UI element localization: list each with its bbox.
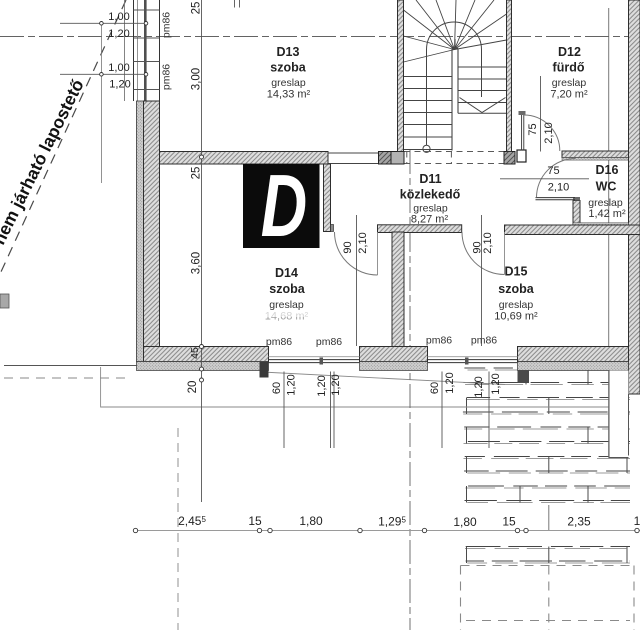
svg-text:25: 25 xyxy=(191,2,203,15)
svg-text:10,69 m²: 10,69 m² xyxy=(494,311,538,323)
svg-text:1,42 m²: 1,42 m² xyxy=(588,208,626,220)
svg-text:1,20: 1,20 xyxy=(109,79,130,91)
svg-text:D14: D14 xyxy=(275,266,298,280)
svg-text:2,35: 2,35 xyxy=(567,515,591,529)
svg-text:1,80: 1,80 xyxy=(299,514,323,528)
svg-text:45: 45 xyxy=(189,347,201,359)
svg-text:D: D xyxy=(261,157,307,255)
svg-text:1,00: 1,00 xyxy=(108,11,129,23)
svg-text:15: 15 xyxy=(502,515,516,529)
svg-text:D13: D13 xyxy=(277,45,300,59)
svg-text:1,20: 1,20 xyxy=(490,373,502,394)
svg-text:14,33 m²: 14,33 m² xyxy=(267,89,311,101)
svg-text:60: 60 xyxy=(271,382,283,394)
svg-text:pm86: pm86 xyxy=(316,336,342,348)
svg-text:8,27 m²: 8,27 m² xyxy=(411,214,449,226)
svg-text:3,00: 3,00 xyxy=(191,68,203,90)
svg-text:90: 90 xyxy=(342,241,354,253)
svg-text:2,10: 2,10 xyxy=(482,232,494,253)
svg-text:1,00: 1,00 xyxy=(108,62,129,74)
svg-text:1,20: 1,20 xyxy=(286,374,298,395)
svg-text:1,20: 1,20 xyxy=(108,28,129,40)
svg-text:greslap: greslap xyxy=(271,77,306,89)
svg-text:greslap: greslap xyxy=(552,77,587,89)
svg-text:D16: D16 xyxy=(596,163,619,177)
svg-text:greslap: greslap xyxy=(499,299,534,311)
svg-text:1,20: 1,20 xyxy=(330,374,342,395)
svg-text:D12: D12 xyxy=(558,45,581,59)
svg-text:pm86: pm86 xyxy=(161,12,173,38)
svg-text:1,20: 1,20 xyxy=(473,376,485,397)
svg-text:WC: WC xyxy=(596,180,617,194)
svg-text:2,10: 2,10 xyxy=(357,232,369,253)
svg-text:fürdő: fürdő xyxy=(553,61,585,75)
svg-text:szoba: szoba xyxy=(270,61,306,75)
svg-text:pm86: pm86 xyxy=(426,335,452,347)
svg-text:szoba: szoba xyxy=(498,282,534,296)
svg-text:1,20: 1,20 xyxy=(316,375,328,396)
svg-text:15: 15 xyxy=(248,514,262,528)
svg-text:25: 25 xyxy=(191,167,203,180)
svg-text:pm86: pm86 xyxy=(471,335,497,347)
svg-text:75: 75 xyxy=(527,123,539,135)
svg-text:szoba: szoba xyxy=(269,282,305,296)
svg-text:2,10: 2,10 xyxy=(548,182,569,194)
svg-text:közlekedő: közlekedő xyxy=(400,188,461,202)
svg-text:D15: D15 xyxy=(505,265,528,279)
svg-text:greslap: greslap xyxy=(269,299,304,311)
svg-text:7,20 m²: 7,20 m² xyxy=(550,89,588,101)
svg-text:D11: D11 xyxy=(419,172,441,186)
svg-text:1: 1 xyxy=(634,514,640,528)
svg-text:3,60: 3,60 xyxy=(191,252,203,274)
svg-text:1,80: 1,80 xyxy=(453,515,477,529)
svg-text:1,20: 1,20 xyxy=(444,372,456,393)
svg-text:20: 20 xyxy=(187,381,199,394)
svg-text:60: 60 xyxy=(429,382,441,394)
svg-text:pm86: pm86 xyxy=(266,336,292,348)
svg-text:75: 75 xyxy=(547,165,559,177)
svg-text:2,10: 2,10 xyxy=(543,122,555,143)
svg-text:pm86: pm86 xyxy=(161,64,173,90)
